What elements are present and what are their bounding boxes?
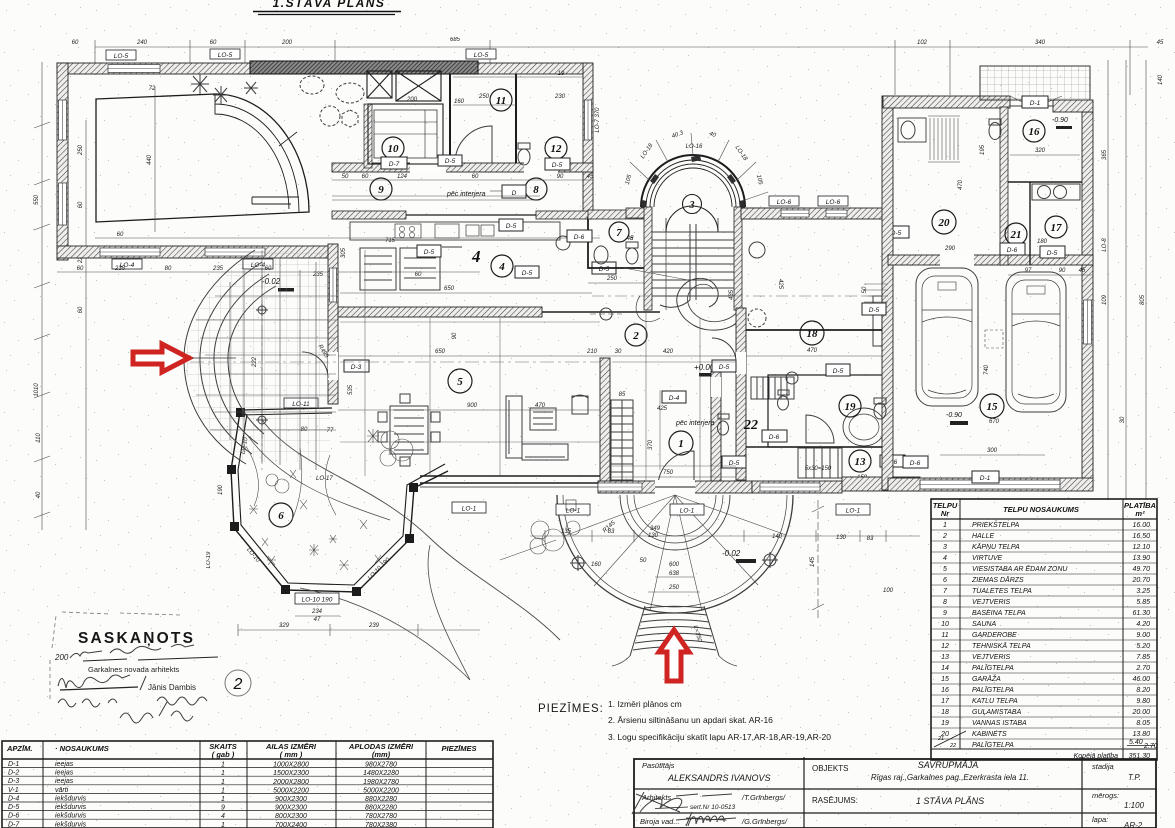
- svg-text:APZĪM.: APZĪM.: [6, 744, 32, 753]
- svg-text:GARDEROBE: GARDEROBE: [972, 632, 1017, 639]
- svg-text:m²: m²: [1135, 509, 1145, 518]
- svg-text:LO-1: LO-1: [462, 506, 477, 513]
- svg-text:3: 3: [689, 200, 695, 211]
- svg-text:lapa:: lapa:: [1092, 815, 1108, 824]
- svg-text:LO-5: LO-5: [114, 53, 129, 60]
- svg-text:2. Ārsienu siltināšanu un a: 2. Ārsienu siltināšanu un apdari skat. A…: [608, 715, 773, 725]
- svg-text:60: 60: [472, 174, 479, 180]
- svg-text:49.70: 49.70: [1132, 566, 1150, 573]
- svg-text:D-5: D-5: [8, 804, 19, 811]
- svg-text:250: 250: [606, 276, 618, 282]
- svg-text:V-1: V-1: [8, 787, 19, 794]
- svg-text:TUALETES TELPA: TUALETES TELPA: [972, 588, 1032, 595]
- svg-text:200: 200: [406, 97, 418, 103]
- svg-text:4: 4: [221, 813, 225, 820]
- svg-text:D-1: D-1: [8, 761, 19, 768]
- svg-text:650: 650: [444, 286, 455, 292]
- svg-text:19: 19: [941, 720, 949, 727]
- svg-text:LO-16: LO-16: [686, 144, 703, 150]
- svg-text:700X2400: 700X2400: [275, 822, 307, 828]
- svg-text:109: 109: [1102, 294, 1108, 305]
- svg-text:1480X2280: 1480X2280: [363, 770, 399, 777]
- svg-text:83: 83: [608, 529, 615, 535]
- svg-text:685: 685: [450, 37, 461, 43]
- svg-text:D-3: D-3: [8, 778, 19, 785]
- svg-text:mērogs:: mērogs:: [1092, 791, 1119, 800]
- svg-text:900: 900: [467, 403, 478, 409]
- svg-text:2.70: 2.70: [1135, 665, 1150, 672]
- svg-text:9: 9: [378, 184, 384, 196]
- svg-text:LO-1: LO-1: [566, 508, 581, 515]
- svg-text:200: 200: [281, 40, 293, 46]
- svg-text:2: 2: [632, 330, 639, 342]
- svg-text:600: 600: [669, 562, 680, 568]
- svg-text:vārti: vārti: [55, 787, 69, 794]
- svg-text:7: 7: [616, 227, 622, 239]
- svg-text:880X2280: 880X2280: [365, 805, 397, 812]
- svg-text:D-1: D-1: [980, 475, 991, 482]
- svg-text:SAUNA: SAUNA: [972, 621, 996, 628]
- svg-text:iekšdurvis: iekšdurvis: [55, 795, 87, 802]
- svg-text:230: 230: [554, 94, 566, 100]
- svg-text:12: 12: [941, 643, 949, 650]
- svg-text:750: 750: [663, 470, 674, 476]
- svg-text:45: 45: [1157, 40, 1164, 46]
- svg-text:20.00: 20.00: [1131, 709, 1150, 716]
- svg-text:KĀPŅU TELPA: KĀPŅU TELPA: [972, 543, 1020, 551]
- svg-text:T.P.: T.P.: [1128, 773, 1141, 782]
- svg-text:PRIEKŠTELPA: PRIEKŠTELPA: [972, 520, 1020, 529]
- svg-text:LO-1: LO-1: [680, 508, 695, 515]
- svg-text:pēc interjera: pēc interjera: [446, 191, 486, 198]
- svg-text:46.00: 46.00: [1132, 676, 1150, 683]
- svg-text:2: 2: [942, 533, 947, 540]
- svg-text:250: 250: [478, 94, 490, 100]
- svg-text:D-6: D-6: [910, 460, 921, 467]
- svg-text:1: 1: [221, 770, 225, 777]
- svg-text:72: 72: [149, 86, 156, 92]
- svg-text:LO-19: LO-19: [206, 551, 212, 568]
- svg-text:425: 425: [777, 279, 783, 290]
- svg-text:Biroja vad...: Biroja vad...: [640, 817, 680, 826]
- svg-text:370: 370: [648, 439, 654, 450]
- svg-text:210: 210: [586, 349, 598, 355]
- svg-text:VEJTVERIS: VEJTVERIS: [972, 599, 1010, 606]
- svg-text:D-5: D-5: [445, 158, 456, 165]
- svg-text:D-5: D-5: [552, 162, 563, 169]
- svg-text:LO-6: LO-6: [777, 199, 792, 206]
- svg-text:329: 329: [279, 623, 290, 629]
- svg-text:5000X2200: 5000X2200: [363, 787, 399, 794]
- svg-text:13.80: 13.80: [1132, 731, 1150, 738]
- svg-text:250: 250: [668, 585, 680, 591]
- svg-text:LO-6: LO-6: [826, 199, 841, 206]
- svg-text:1:100: 1:100: [1124, 801, 1145, 810]
- svg-text:425: 425: [657, 406, 668, 412]
- svg-text:TELPU NOSAUKUMS: TELPU NOSAUKUMS: [1003, 505, 1079, 514]
- svg-text:D-6: D-6: [1007, 247, 1018, 254]
- svg-text:RASĒJUMS:: RASĒJUMS:: [812, 796, 858, 805]
- svg-text:9: 9: [221, 805, 225, 812]
- svg-text:VEJTVERIS: VEJTVERIS: [972, 654, 1010, 661]
- svg-text:47: 47: [314, 617, 321, 623]
- svg-text:4: 4: [498, 261, 505, 273]
- svg-text:5: 5: [457, 376, 463, 388]
- svg-text:6: 6: [943, 577, 947, 584]
- svg-text:300: 300: [987, 448, 998, 454]
- svg-text:195: 195: [980, 144, 986, 155]
- svg-text:AR-2: AR-2: [1123, 821, 1143, 828]
- svg-text:21: 21: [1010, 229, 1022, 241]
- svg-text:LO-5: LO-5: [474, 52, 489, 59]
- svg-text:ieejas: ieejas: [55, 770, 74, 777]
- svg-text:470: 470: [535, 403, 546, 409]
- svg-text:22: 22: [949, 743, 956, 749]
- svg-text:3.25: 3.25: [1136, 588, 1150, 595]
- svg-text:20: 20: [938, 217, 951, 229]
- svg-text:780X2780: 780X2780: [365, 813, 397, 820]
- svg-text:16.50: 16.50: [1132, 533, 1150, 540]
- svg-text:Nr: Nr: [941, 509, 950, 518]
- svg-text:17: 17: [941, 698, 950, 705]
- svg-text:ieejas: ieejas: [55, 761, 74, 768]
- svg-text:102: 102: [917, 40, 928, 46]
- svg-text:VIESISTABA AR ĒDAM ZONU: VIESISTABA AR ĒDAM ZONU: [972, 565, 1068, 573]
- svg-text:80: 80: [165, 266, 172, 272]
- svg-text:235: 235: [114, 266, 126, 272]
- svg-text:LO-7 370: LO-7 370: [595, 107, 601, 133]
- svg-text:GUĻAMISTABA: GUĻAMISTABA: [972, 709, 1022, 716]
- svg-text:22: 22: [743, 418, 758, 433]
- svg-text:9: 9: [943, 610, 947, 617]
- svg-text:16: 16: [1029, 126, 1041, 138]
- svg-text:2: 2: [233, 676, 243, 693]
- svg-text:D-4: D-4: [8, 795, 19, 802]
- svg-text:3. Logu specifikāciju skatīt: 3. Logu specifikāciju skatīt lapu AR-17,…: [608, 732, 831, 742]
- svg-text:D-5: D-5: [424, 249, 435, 256]
- svg-text:4.20: 4.20: [1136, 621, 1150, 628]
- svg-text:LO-1: LO-1: [846, 508, 861, 515]
- svg-text:9.00: 9.00: [1136, 632, 1150, 639]
- svg-text:2.70: 2.70: [1143, 743, 1158, 750]
- svg-text:LO-5: LO-5: [218, 52, 233, 59]
- svg-text:60: 60: [72, 40, 79, 46]
- svg-text:6: 6: [278, 510, 284, 522]
- svg-text:60: 60: [78, 201, 84, 208]
- svg-text:50: 50: [862, 286, 868, 293]
- svg-text:D-1: D-1: [1030, 100, 1041, 107]
- svg-text:21: 21: [937, 736, 944, 742]
- svg-text:365: 365: [1102, 149, 1108, 160]
- svg-text:19: 19: [558, 71, 565, 77]
- svg-text:KABINETS: KABINETS: [972, 731, 1007, 738]
- svg-text:124: 124: [397, 174, 408, 180]
- svg-text:( mm ): ( mm ): [280, 750, 303, 759]
- svg-text:535: 535: [348, 384, 354, 395]
- svg-text:16.00: 16.00: [1132, 522, 1150, 529]
- svg-text:440: 440: [147, 154, 153, 165]
- svg-text:pēc interjera: pēc interjera: [675, 420, 715, 427]
- svg-text:8: 8: [533, 184, 539, 196]
- svg-text:D-5: D-5: [869, 307, 880, 314]
- svg-text:PIEZĪMES:: PIEZĪMES:: [538, 703, 604, 715]
- svg-text:LO-8: LO-8: [1102, 238, 1108, 252]
- svg-text:iekšdurvis: iekšdurvis: [55, 821, 87, 828]
- svg-text:239: 239: [368, 623, 380, 629]
- svg-text:90: 90: [452, 332, 458, 339]
- svg-text:50: 50: [640, 558, 647, 564]
- svg-text:OBJEKTS: OBJEKTS: [812, 764, 848, 773]
- svg-text:60: 60: [210, 40, 217, 46]
- svg-text:5.20: 5.20: [1136, 643, 1150, 650]
- svg-text:-0.90: -0.90: [1052, 117, 1068, 124]
- svg-text:200: 200: [54, 653, 69, 662]
- svg-text:650: 650: [435, 349, 446, 355]
- svg-text:Garkalnes novada arhitekts: Garkalnes novada arhitekts: [88, 665, 180, 674]
- svg-text:160: 160: [454, 99, 465, 105]
- svg-text:140: 140: [772, 534, 783, 540]
- svg-text:ieejas: ieejas: [55, 778, 74, 785]
- svg-text:3: 3: [943, 544, 947, 551]
- svg-text:145: 145: [810, 556, 816, 567]
- svg-text:10: 10: [388, 143, 400, 155]
- svg-text:30: 30: [615, 349, 622, 355]
- svg-text:D-5: D-5: [506, 223, 517, 230]
- svg-text:190: 190: [218, 484, 224, 495]
- svg-text:60: 60: [117, 232, 124, 238]
- svg-text:/T.Grīnbergs/: /T.Grīnbergs/: [741, 793, 786, 802]
- svg-text:9.80: 9.80: [1136, 698, 1150, 705]
- svg-text:180: 180: [1037, 239, 1048, 245]
- svg-text:160: 160: [591, 562, 602, 568]
- svg-text:D-6: D-6: [8, 813, 19, 820]
- svg-text:12.10: 12.10: [1132, 544, 1150, 551]
- svg-text:16: 16: [941, 687, 949, 694]
- svg-text:1: 1: [678, 438, 684, 450]
- svg-text:900X2300: 900X2300: [275, 805, 307, 812]
- svg-text:D-5: D-5: [1047, 250, 1058, 257]
- svg-text:PALĪGTELPA: PALĪGTELPA: [972, 664, 1014, 672]
- svg-text:1. Izmēri plānos cm: 1. Izmēri plānos cm: [608, 699, 682, 709]
- svg-text:1: 1: [221, 779, 225, 786]
- svg-text:740: 740: [984, 364, 990, 375]
- svg-text:TEHNISKĀ TELPA: TEHNISKĀ TELPA: [972, 642, 1031, 650]
- svg-text:1: 1: [943, 522, 947, 529]
- svg-text:50: 50: [342, 174, 349, 180]
- svg-text:HALLE: HALLE: [972, 533, 995, 540]
- svg-text:LO-10 190: LO-10 190: [302, 597, 333, 604]
- svg-text:90: 90: [1059, 268, 1066, 274]
- svg-text:1980X2780: 1980X2780: [363, 779, 399, 786]
- svg-text:10: 10: [941, 621, 949, 628]
- svg-text:800X2300: 800X2300: [275, 813, 307, 820]
- svg-text:PIEZĪMES: PIEZĪMES: [441, 744, 476, 753]
- svg-text:234: 234: [311, 609, 323, 615]
- svg-text:140: 140: [1158, 74, 1164, 85]
- svg-text:/G.Grīnbergs/: /G.Grīnbergs/: [741, 817, 788, 826]
- svg-text:470: 470: [958, 179, 964, 190]
- svg-text:130: 130: [836, 535, 847, 541]
- svg-text:805: 805: [1140, 294, 1146, 305]
- svg-text:250: 250: [78, 144, 84, 156]
- svg-text:Pasūtītājs: Pasūtītājs: [642, 761, 675, 770]
- svg-text:20.70: 20.70: [1131, 577, 1150, 584]
- svg-text:340: 340: [1035, 40, 1046, 46]
- svg-text:7.85: 7.85: [1136, 654, 1150, 661]
- svg-text:1010: 1010: [34, 383, 40, 397]
- svg-text:18: 18: [941, 709, 949, 716]
- svg-text:90: 90: [557, 174, 564, 180]
- svg-text:14: 14: [941, 665, 949, 672]
- svg-text:222: 222: [252, 356, 258, 368]
- svg-text:1: 1: [221, 762, 225, 769]
- svg-text:19: 19: [845, 401, 857, 413]
- svg-text:D-6: D-6: [769, 434, 780, 441]
- svg-text:2000X2800: 2000X2800: [272, 779, 309, 786]
- svg-text:1000X2800: 1000X2800: [273, 762, 309, 769]
- svg-text:D-3: D-3: [351, 364, 362, 371]
- svg-text:305: 305: [341, 247, 347, 258]
- svg-text:61.30: 61.30: [1132, 610, 1150, 617]
- svg-text:D-4: D-4: [669, 395, 680, 402]
- svg-text:8.05: 8.05: [1136, 720, 1150, 727]
- svg-text:30: 30: [1120, 416, 1126, 423]
- svg-text:D-5: D-5: [599, 266, 610, 273]
- svg-text:60: 60: [362, 174, 369, 180]
- svg-text:PALĪGTELPA: PALĪGTELPA: [972, 686, 1014, 694]
- svg-text:SAVRUPMĀJA: SAVRUPMĀJA: [918, 760, 979, 770]
- svg-text:sert.Nr 10-0513: sert.Nr 10-0513: [690, 804, 736, 811]
- svg-text:( gab ): ( gab ): [212, 750, 235, 759]
- svg-text:880X2280: 880X2280: [365, 796, 397, 803]
- svg-text:670: 670: [989, 419, 1000, 425]
- svg-text:ZIEMAS DĀRZS: ZIEMAS DĀRZS: [971, 576, 1024, 584]
- svg-text:349: 349: [650, 526, 661, 532]
- svg-text:D-5: D-5: [522, 270, 533, 277]
- svg-text:4: 4: [943, 555, 947, 562]
- svg-text:980X2780: 980X2780: [365, 762, 397, 769]
- svg-text:13: 13: [941, 654, 949, 661]
- svg-text:LO-17: LO-17: [316, 476, 333, 482]
- svg-text:D-7: D-7: [8, 821, 20, 828]
- svg-text:235: 235: [212, 266, 224, 272]
- svg-text:· NOSAUKUMS: · NOSAUKUMS: [55, 744, 109, 753]
- svg-text:45: 45: [587, 174, 594, 180]
- svg-text:D-2: D-2: [8, 770, 19, 777]
- svg-text:110: 110: [36, 433, 42, 443]
- svg-text:1: 1: [221, 787, 225, 794]
- svg-text:Rīgas raj.,Garkalnes pag.,Ez: Rīgas raj.,Garkalnes pag.,Ezerkrasta iel…: [871, 773, 1029, 782]
- svg-text:60: 60: [77, 266, 84, 272]
- svg-text:VIRTUVE: VIRTUVE: [972, 555, 1003, 562]
- svg-text:1: 1: [221, 796, 225, 803]
- svg-text:GARĀŽA: GARĀŽA: [972, 674, 1001, 683]
- svg-text:100: 100: [883, 588, 894, 594]
- svg-text:420: 420: [663, 349, 674, 355]
- svg-text:17: 17: [1051, 222, 1063, 234]
- svg-text:60: 60: [78, 306, 84, 313]
- svg-text:5000X2200: 5000X2200: [273, 787, 309, 794]
- svg-text:83: 83: [867, 536, 874, 542]
- svg-text:VANNAS ISTABA: VANNAS ISTABA: [972, 720, 1027, 727]
- svg-text:13.90: 13.90: [1132, 555, 1150, 562]
- svg-text:BASEINA TELPA: BASEINA TELPA: [972, 610, 1026, 617]
- svg-text:1: 1: [221, 822, 225, 828]
- svg-text:D-7: D-7: [389, 161, 400, 168]
- svg-text:11: 11: [941, 632, 948, 639]
- svg-text:900X2300: 900X2300: [275, 796, 307, 803]
- svg-text:5x30=150: 5x30=150: [805, 466, 832, 472]
- svg-text:iekšdurvis: iekšdurvis: [55, 813, 87, 820]
- svg-text:40: 40: [36, 491, 42, 498]
- svg-text:D-6: D-6: [574, 234, 585, 241]
- svg-text:240: 240: [136, 40, 148, 46]
- svg-text:4: 4: [471, 247, 481, 266]
- svg-text:320: 320: [1035, 148, 1046, 154]
- svg-text:60: 60: [415, 272, 422, 278]
- svg-text:435: 435: [729, 289, 735, 300]
- svg-text:1.STĀVA PLĀNS: 1.STĀVA PLĀNS: [273, 0, 386, 10]
- svg-text:ALEKSANDRS IVANOVS: ALEKSANDRS IVANOVS: [667, 773, 771, 783]
- svg-text:8: 8: [943, 599, 947, 606]
- svg-text:1500X2300: 1500X2300: [273, 770, 309, 777]
- svg-text:97: 97: [1025, 268, 1032, 274]
- svg-text:638: 638: [669, 571, 680, 577]
- svg-text:Jānis Dambis: Jānis Dambis: [148, 683, 196, 692]
- svg-text:130: 130: [648, 533, 659, 539]
- svg-text:(mm): (mm): [372, 750, 391, 759]
- svg-text:iekšdurvis: iekšdurvis: [55, 804, 87, 811]
- svg-text:-0.02: -0.02: [722, 549, 741, 558]
- svg-text:12: 12: [551, 143, 563, 155]
- svg-text:8.20: 8.20: [1136, 687, 1150, 694]
- svg-text:15: 15: [941, 676, 949, 683]
- svg-text:715: 715: [385, 238, 396, 244]
- svg-text:15: 15: [987, 401, 999, 413]
- svg-text:D-5: D-5: [719, 364, 730, 371]
- svg-text:stadija: stadija: [1092, 762, 1114, 771]
- svg-text:5.85: 5.85: [1136, 599, 1150, 606]
- svg-text:290: 290: [944, 246, 956, 252]
- svg-text:KATLU TELPA: KATLU TELPA: [972, 698, 1018, 705]
- svg-text:-0.90: -0.90: [946, 412, 962, 419]
- svg-text:5: 5: [943, 566, 947, 573]
- svg-text:45: 45: [1079, 268, 1086, 274]
- svg-text:85: 85: [619, 392, 626, 398]
- svg-text:PALĪGTELPA: PALĪGTELPA: [972, 741, 1014, 749]
- svg-text:D-5: D-5: [833, 368, 844, 375]
- svg-text:13: 13: [855, 456, 867, 468]
- svg-text:550: 550: [34, 194, 40, 205]
- svg-text:5.40: 5.40: [1129, 739, 1143, 746]
- svg-text:470: 470: [807, 348, 818, 354]
- svg-text:1 STĀVA PLĀNS: 1 STĀVA PLĀNS: [916, 796, 984, 806]
- svg-text:780X2380: 780X2380: [365, 822, 397, 828]
